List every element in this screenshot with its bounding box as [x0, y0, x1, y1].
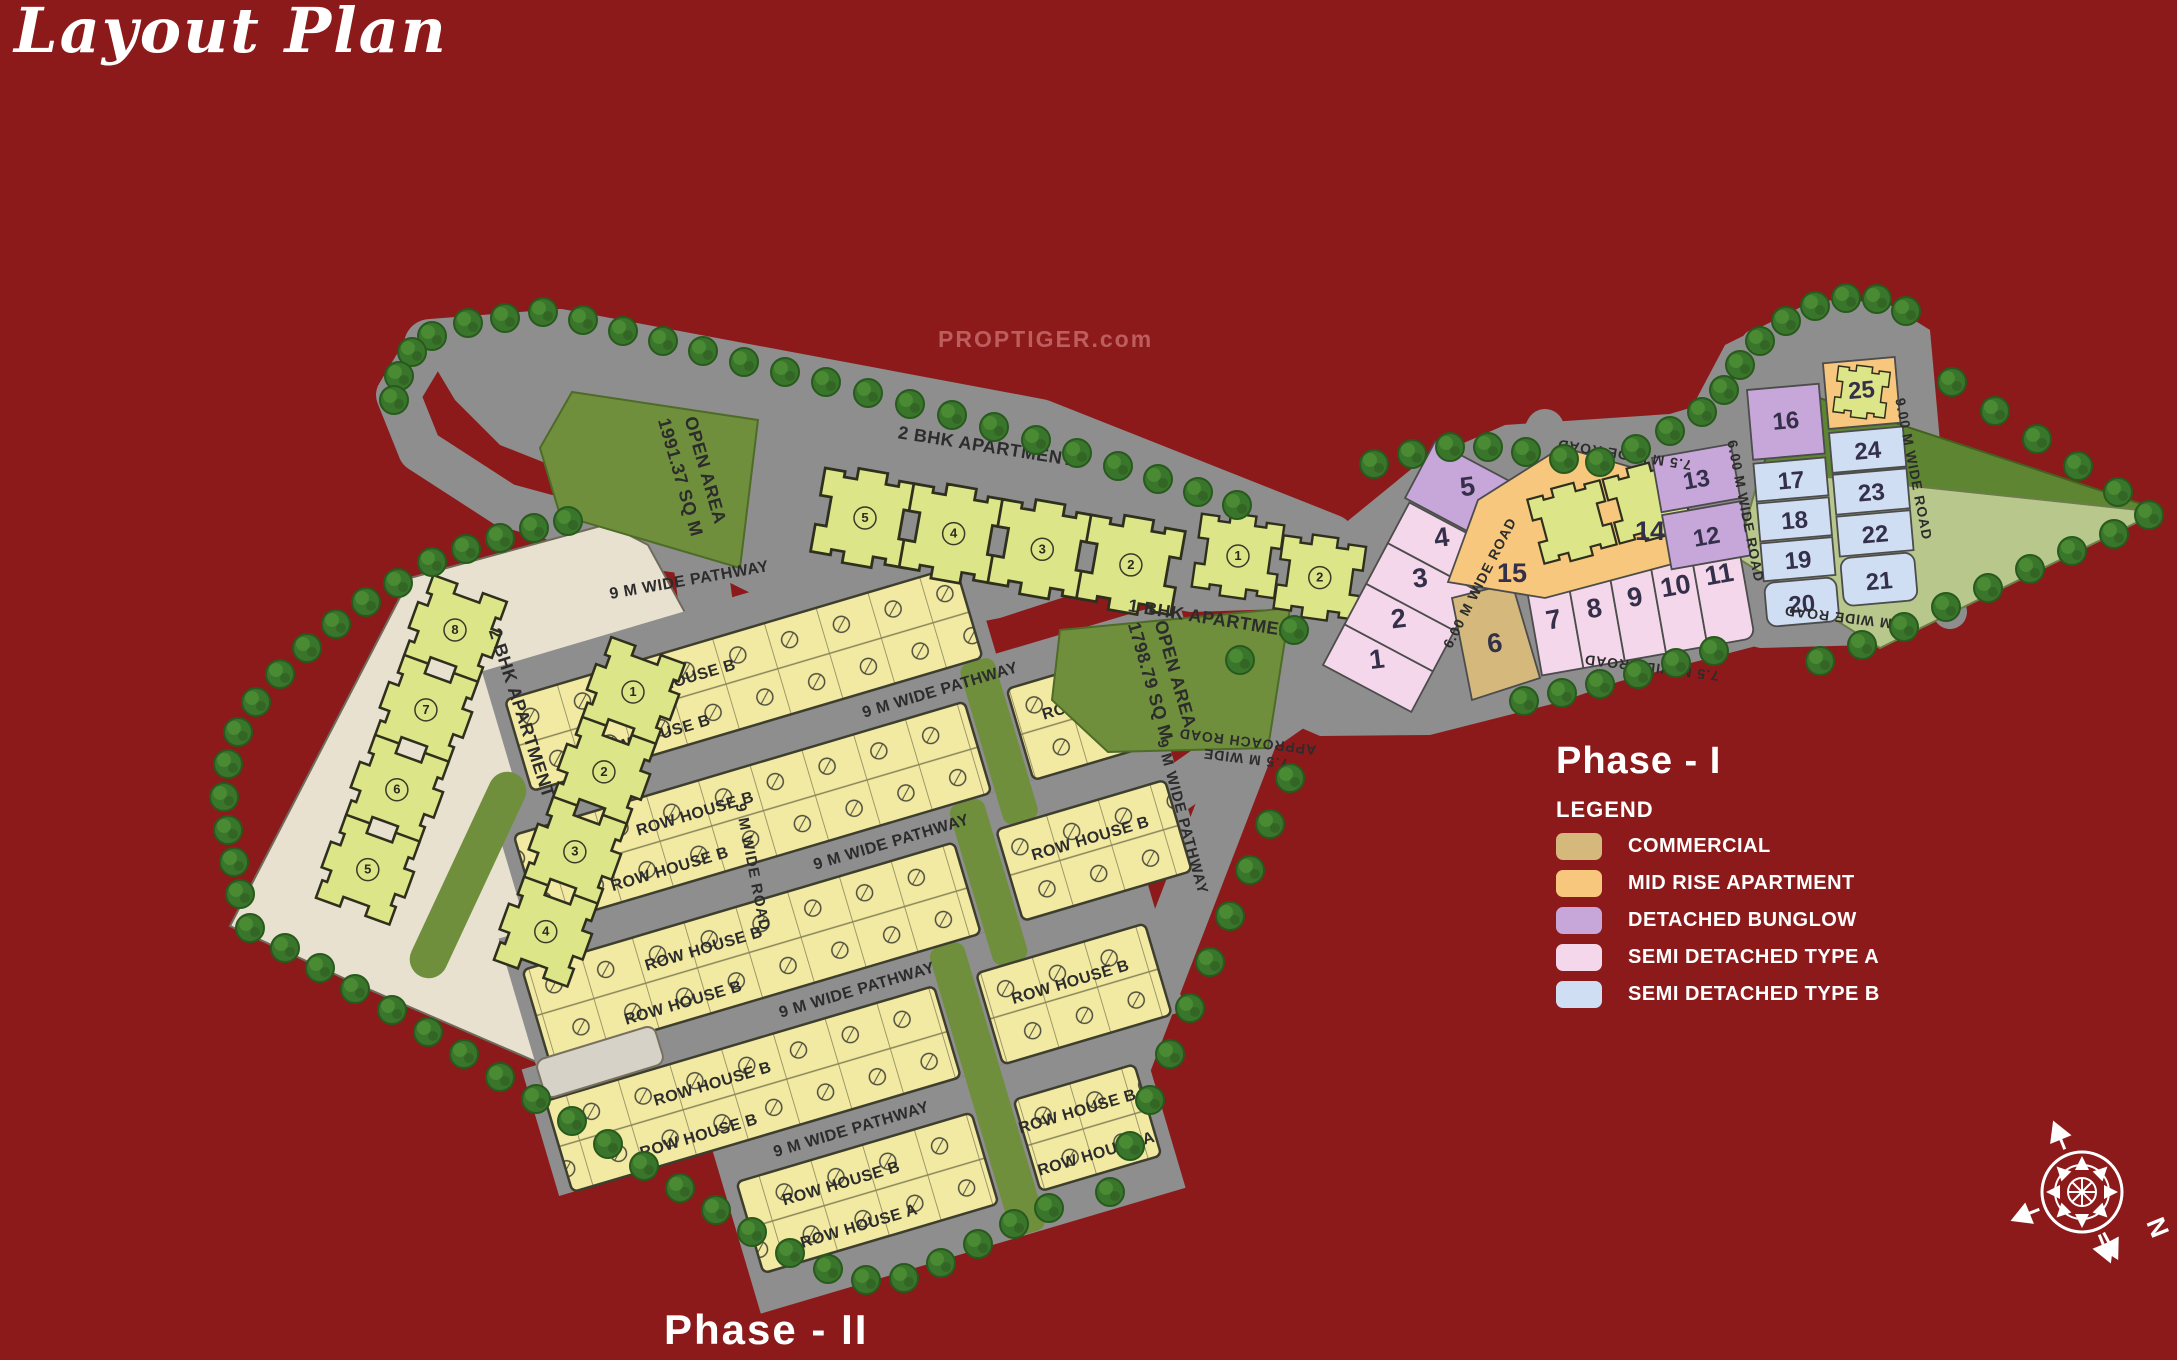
- tower-number: 7: [422, 702, 429, 717]
- legend-swatch: [1556, 833, 1602, 860]
- tower-number: 3: [1039, 541, 1046, 556]
- tower-number: 4: [950, 526, 958, 541]
- legend-item-detached-bunglow: DETACHED BUNGLOW: [1556, 907, 1880, 934]
- legend-label: SEMI DETACHED TYPE A: [1628, 946, 1879, 969]
- tower-number: 1: [629, 684, 636, 699]
- plot-number: 17: [1777, 466, 1806, 495]
- legend-label: MID RISE APARTMENT: [1628, 872, 1855, 895]
- tower-number: 3: [571, 844, 578, 859]
- phase2-heading: Phase - II: [664, 1306, 868, 1354]
- layout-plan-page: ROW HOUSE B ROW HOUSE B ROW HOUSE B ROW …: [0, 0, 2177, 1360]
- tower-number: 6: [393, 782, 400, 797]
- legend-swatch: [1556, 907, 1602, 934]
- compass-rose: N: [1986, 1120, 2176, 1288]
- legend-swatch: [1556, 944, 1602, 971]
- phase1-legend: Phase - I LEGEND COMMERCIAL MID RISE APA…: [1556, 740, 1880, 1008]
- watermark: PROPTIGER.com: [938, 326, 1153, 353]
- tower-number: 5: [364, 862, 371, 877]
- tower-number: 2: [600, 764, 607, 779]
- plot-number: 19: [1784, 546, 1813, 575]
- legend-label: COMMERCIAL: [1628, 835, 1771, 858]
- legend-item-semi-detached-b: SEMI DETACHED TYPE B: [1556, 981, 1880, 1008]
- tower-number: 2: [1127, 557, 1134, 572]
- legend-label: DETACHED BUNGLOW: [1628, 909, 1857, 932]
- plot-number: 18: [1780, 506, 1809, 535]
- plot-number: 14: [1635, 516, 1665, 546]
- page-title: Layout Plan: [14, 0, 448, 67]
- plot-number: 16: [1771, 407, 1800, 436]
- tower-number: 8: [451, 622, 458, 637]
- plot-number: 22: [1861, 520, 1890, 549]
- plot-number: 10: [1658, 569, 1693, 604]
- tower-number: 2: [1316, 570, 1323, 585]
- north-label: N: [2140, 1213, 2175, 1242]
- plot-number: 24: [1853, 437, 1883, 466]
- legend-item-mid-rise: MID RISE APARTMENT: [1556, 870, 1880, 897]
- plot-number: 23: [1857, 478, 1886, 507]
- legend-swatch: [1556, 981, 1602, 1008]
- site-plan-map: ROW HOUSE B ROW HOUSE B ROW HOUSE B ROW …: [0, 0, 2177, 1360]
- legend-item-semi-detached-a: SEMI DETACHED TYPE A: [1556, 944, 1880, 971]
- legend-swatch: [1556, 870, 1602, 897]
- plot-number: 25: [1847, 376, 1876, 405]
- phase1-heading: Phase - I: [1556, 740, 1880, 783]
- legend-label: SEMI DETACHED TYPE B: [1628, 983, 1880, 1006]
- tower-number: 4: [542, 924, 550, 939]
- plot-number: 15: [1497, 558, 1527, 588]
- tower-number: 5: [861, 510, 868, 525]
- plot-number: 12: [1691, 522, 1722, 553]
- plot-number: 21: [1865, 567, 1894, 596]
- legend-item-commercial: COMMERCIAL: [1556, 833, 1880, 860]
- legend-title: LEGEND: [1556, 797, 1880, 823]
- tower-number: 1: [1234, 548, 1241, 563]
